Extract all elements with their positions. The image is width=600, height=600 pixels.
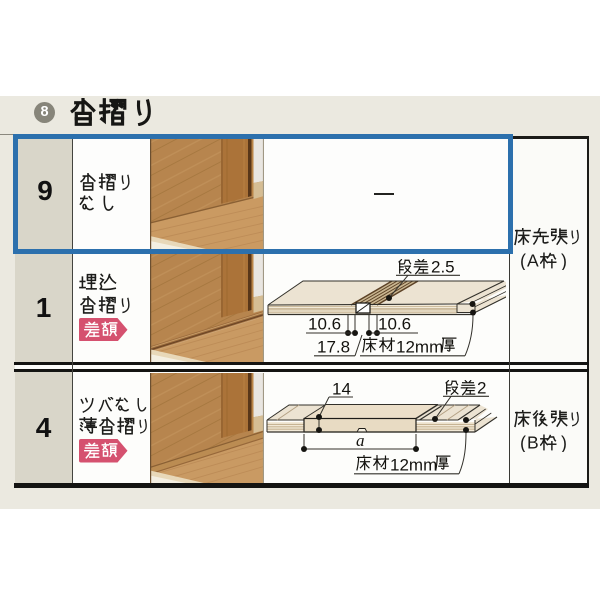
svg-text:A: A (527, 251, 539, 271)
svg-text:12mm: 12mm (390, 456, 437, 475)
svg-text:10.6: 10.6 (378, 315, 411, 334)
svg-text:17.8: 17.8 (317, 338, 350, 357)
svg-text:a: a (356, 431, 365, 450)
svg-text:B: B (527, 433, 539, 453)
svg-text:2: 2 (477, 379, 486, 398)
svg-text:(: ( (520, 433, 526, 452)
svg-text:2.5: 2.5 (431, 258, 455, 277)
svg-text:(: ( (520, 251, 526, 270)
svg-text:): ) (561, 433, 567, 452)
svg-text:): ) (561, 251, 567, 270)
svg-text:14: 14 (332, 380, 351, 399)
svg-text:12mm: 12mm (396, 338, 443, 357)
svg-text:10.6: 10.6 (308, 315, 341, 334)
